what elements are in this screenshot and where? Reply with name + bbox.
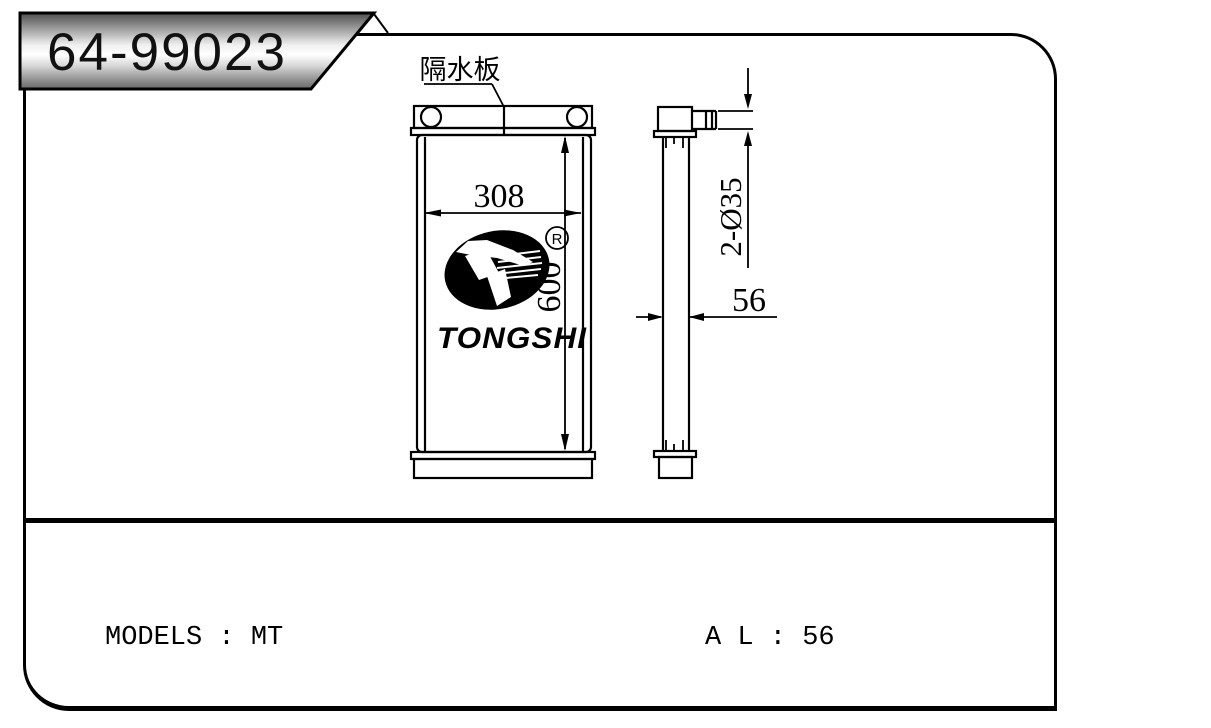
brand-wordmark: TONGSHI <box>437 322 587 355</box>
svg-text:R: R <box>552 231 563 248</box>
dim-core-width: 308 <box>424 178 581 217</box>
baffle-label: 隔水板 <box>420 55 501 86</box>
spec-block-right: A L : 56 DPI : OEM : NISSENS: <box>705 548 835 728</box>
front-view: 隔水板 308 600 <box>411 55 595 478</box>
port-circle-left <box>421 107 441 127</box>
front-bottom-tank <box>411 452 595 478</box>
dim-core-depth: 56 <box>636 282 777 321</box>
dim-core-width-text: 308 <box>474 178 525 215</box>
dim-core-depth-text: 56 <box>732 282 766 319</box>
spec-models: MODELS : MT <box>105 620 445 656</box>
side-core <box>663 137 689 451</box>
drawing-sheet: 隔水板 308 600 <box>0 0 1211 728</box>
port-circle-right <box>567 107 587 127</box>
side-view: 2-Ø35 56 <box>636 68 777 478</box>
badge-connector-line <box>374 14 388 33</box>
baffle-leader <box>424 84 504 107</box>
dim-ports: 2-Ø35 <box>713 68 753 268</box>
side-bottom-tank <box>654 451 696 478</box>
part-number: 64-99023 <box>47 23 287 82</box>
dim-ports-text: 2-Ø35 <box>713 177 748 256</box>
dim-core-height: 600 <box>531 136 569 451</box>
spec-al: A L : 56 <box>705 620 835 656</box>
part-number-badge: 64-99023 <box>20 13 388 89</box>
front-top-tank <box>411 106 595 135</box>
spec-block-left: MODELS : MT CORE SIZE : 600*308 TANK SIZ… <box>105 548 445 728</box>
section-divider <box>25 518 1056 523</box>
